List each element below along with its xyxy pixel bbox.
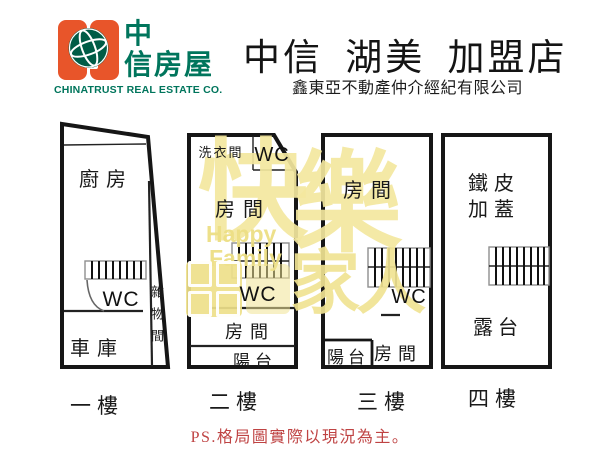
floor2-laundry-label: 洗衣間 — [190, 142, 252, 161]
floor1-wc-label: WC — [98, 288, 144, 312]
floor4-rooftop-label-line2: 加蓋 — [454, 193, 534, 222]
floor4-stairs — [489, 247, 549, 285]
floor2-room-lower-label: 房間 — [210, 318, 290, 344]
floor2-wc-label: WC — [235, 283, 281, 307]
floor4-name: 四樓 — [455, 383, 535, 413]
floor4-rooftop-label-line1: 鐵皮 — [454, 167, 534, 196]
floor3-stairs — [368, 248, 430, 287]
floor1-garage-label: 車庫 — [57, 332, 137, 361]
floor1-storage-label: 雜物間 — [147, 285, 166, 351]
floor2-stairs — [232, 243, 289, 278]
floor1-kitchen-label: 廚房 — [66, 163, 146, 192]
floor1-stairs — [85, 261, 146, 279]
floor3-name: 三樓 — [344, 386, 424, 416]
floor1-top-partition — [64, 144, 146, 145]
floor3-room-lower-label: 房間 — [358, 340, 438, 366]
floor2-room-upper-label: 房間 — [203, 193, 283, 222]
floor2-wc-top-label: WC — [250, 144, 294, 167]
footnote: PS.格局圖實際以現況為主。 — [150, 423, 450, 447]
floorplan-flyer: 中 信房屋 CHINATRUST REAL ESTATE CO. 中信 湖美 加… — [0, 0, 600, 450]
floor1-name: 一樓 — [57, 390, 137, 420]
floor3-wc-label: WC — [386, 286, 432, 309]
floor2-balcony-label: 陽台 — [217, 347, 293, 372]
floor2-name: 二樓 — [196, 386, 276, 416]
floor3-room-upper-label: 房間 — [331, 174, 411, 203]
floor3-plan — [323, 135, 431, 367]
floor4-terrace-label: 露台 — [458, 311, 538, 340]
